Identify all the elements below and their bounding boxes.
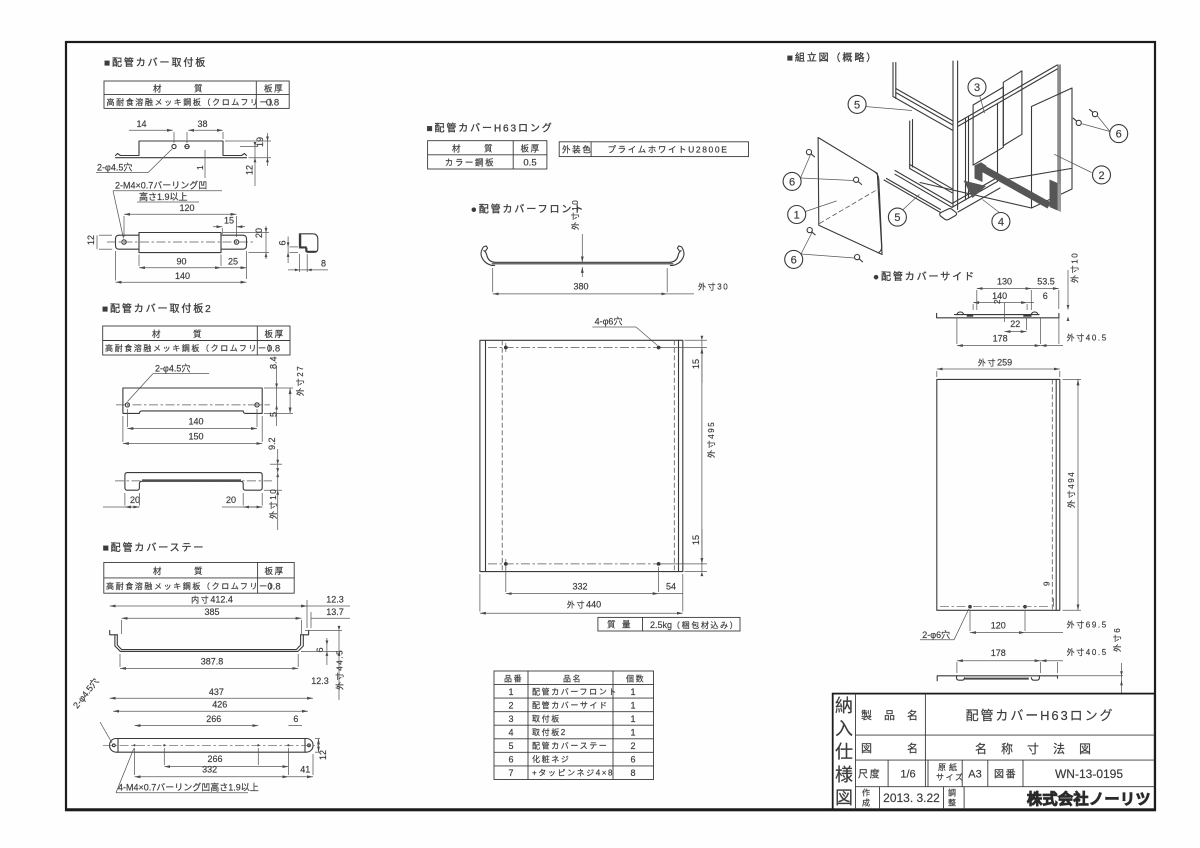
svg-text:1: 1 bbox=[630, 701, 635, 711]
svg-text:150: 150 bbox=[188, 432, 203, 442]
svg-text:プライムホワイトU2800E: プライムホワイトU2800E bbox=[608, 145, 729, 155]
svg-text:A3: A3 bbox=[968, 769, 981, 781]
svg-text:1: 1 bbox=[508, 687, 513, 697]
svg-text:6: 6 bbox=[1116, 129, 1122, 141]
svg-text:図: 図 bbox=[835, 788, 853, 808]
svg-text:1: 1 bbox=[794, 209, 800, 221]
svg-text:外寸69.5: 外寸69.5 bbox=[1067, 620, 1108, 630]
svg-text:1/6: 1/6 bbox=[900, 769, 915, 781]
svg-text:高耐食溶融メッキ鋼板（クロムフリー）: 高耐食溶融メッキ鋼板（クロムフリー） bbox=[105, 343, 277, 353]
svg-text:9.2: 9.2 bbox=[267, 437, 277, 450]
svg-text:高耐食溶融メッキ鋼板（クロムフリー）: 高耐食溶融メッキ鋼板（クロムフリー） bbox=[106, 581, 278, 591]
svg-text:2-M4×0.7バーリング凹: 2-M4×0.7バーリング凹 bbox=[115, 180, 207, 191]
svg-text:板厚: 板厚 bbox=[521, 144, 541, 154]
svg-text:●配管カバーフロント: ●配管カバーフロント bbox=[471, 203, 585, 216]
svg-text:品: 品 bbox=[884, 709, 895, 722]
svg-text:材: 材 bbox=[452, 144, 461, 154]
svg-text:1: 1 bbox=[630, 687, 635, 697]
svg-text:5: 5 bbox=[894, 212, 900, 224]
svg-text:様: 様 bbox=[835, 765, 853, 785]
svg-text:外寸10: 外寸10 bbox=[1070, 252, 1080, 283]
svg-text:図: 図 bbox=[861, 742, 872, 755]
svg-text:8: 8 bbox=[630, 768, 635, 778]
svg-text:板厚: 板厚 bbox=[264, 84, 284, 94]
svg-text:材: 材 bbox=[153, 566, 162, 576]
svg-text:外寸6: 外寸6 bbox=[1112, 627, 1122, 652]
svg-text:8: 8 bbox=[321, 259, 326, 269]
svg-text:質: 質 bbox=[194, 566, 203, 576]
svg-text:2-φ4.5穴: 2-φ4.5穴 bbox=[155, 363, 190, 374]
svg-text:12.3: 12.3 bbox=[311, 676, 329, 686]
svg-text:材: 材 bbox=[153, 84, 162, 94]
svg-text:3: 3 bbox=[508, 714, 513, 724]
svg-text:0.5: 0.5 bbox=[523, 158, 536, 169]
svg-text:140: 140 bbox=[188, 417, 203, 427]
svg-text:成: 成 bbox=[862, 798, 870, 808]
svg-text:130: 130 bbox=[997, 277, 1012, 287]
svg-text:外寸44.5: 外寸44.5 bbox=[335, 649, 345, 690]
svg-text:13.7: 13.7 bbox=[326, 607, 344, 617]
svg-text:2: 2 bbox=[993, 299, 1002, 304]
svg-text:外寸495: 外寸495 bbox=[706, 421, 716, 458]
svg-text:19: 19 bbox=[255, 137, 265, 147]
svg-text:尺度: 尺度 bbox=[858, 768, 881, 781]
svg-text:+タッピンネジ4×8: +タッピンネジ4×8 bbox=[532, 769, 614, 778]
svg-text:質: 質 bbox=[484, 144, 493, 154]
svg-text:1: 1 bbox=[630, 714, 635, 724]
svg-text:1: 1 bbox=[195, 165, 205, 170]
svg-text:385: 385 bbox=[204, 607, 219, 617]
svg-text:質: 質 bbox=[194, 84, 203, 94]
svg-text:332: 332 bbox=[202, 765, 217, 775]
svg-text:内寸412.4: 内寸412.4 bbox=[191, 595, 233, 605]
svg-text:図番: 図番 bbox=[994, 769, 1017, 781]
svg-text:5: 5 bbox=[269, 412, 279, 417]
svg-text:6: 6 bbox=[278, 240, 288, 245]
svg-text:9: 9 bbox=[1043, 581, 1052, 586]
svg-text:4-M4×0.7バーリング凹高さ1.9以上: 4-M4×0.7バーリング凹高さ1.9以上 bbox=[118, 782, 259, 793]
svg-text:取付板: 取付板 bbox=[532, 714, 561, 724]
svg-text:カラー鋼板: カラー鋼板 bbox=[445, 158, 496, 168]
svg-text:調: 調 bbox=[948, 788, 956, 798]
svg-text:2-φ6穴: 2-φ6穴 bbox=[922, 629, 950, 640]
svg-text:120: 120 bbox=[179, 203, 194, 213]
svg-text:納: 納 bbox=[835, 696, 853, 716]
svg-text:6: 6 bbox=[630, 755, 635, 765]
svg-text:5: 5 bbox=[854, 99, 860, 111]
svg-text:15: 15 bbox=[691, 535, 701, 545]
svg-text:整: 整 bbox=[948, 798, 956, 808]
svg-text:株式会社ノーリツ: 株式会社ノーリツ bbox=[1027, 790, 1151, 808]
svg-text:化粧ネジ: 化粧ネジ bbox=[532, 754, 570, 764]
svg-text:426: 426 bbox=[212, 700, 227, 710]
svg-text:6: 6 bbox=[293, 714, 298, 724]
svg-text:外寸40.5: 外寸40.5 bbox=[1067, 333, 1108, 343]
svg-text:個数: 個数 bbox=[626, 674, 645, 684]
svg-text:取付板2: 取付板2 bbox=[532, 727, 567, 737]
svg-text:0.8: 0.8 bbox=[266, 98, 279, 109]
svg-text:質: 質 bbox=[607, 620, 616, 630]
svg-text:332: 332 bbox=[572, 582, 587, 592]
svg-text:7: 7 bbox=[508, 768, 513, 778]
svg-text:■配管カバーH63ロング: ■配管カバーH63ロング bbox=[427, 122, 554, 135]
svg-text:2: 2 bbox=[1098, 170, 1104, 182]
svg-text:板厚: 板厚 bbox=[265, 329, 285, 339]
svg-text:5: 5 bbox=[508, 741, 513, 751]
svg-text:25: 25 bbox=[228, 257, 238, 267]
svg-text:15: 15 bbox=[691, 359, 701, 369]
svg-text:板厚: 板厚 bbox=[265, 566, 285, 576]
svg-text:8.4: 8.4 bbox=[269, 356, 279, 369]
svg-text:配管カバーフロント: 配管カバーフロント bbox=[532, 687, 618, 697]
svg-text:20: 20 bbox=[226, 495, 236, 505]
svg-text:140: 140 bbox=[175, 271, 190, 281]
svg-text:品名: 品名 bbox=[563, 674, 582, 684]
svg-text:高さ1.9以上: 高さ1.9以上 bbox=[139, 191, 188, 202]
svg-text:量: 量 bbox=[622, 620, 631, 630]
svg-text:53.5: 53.5 bbox=[1037, 277, 1055, 287]
svg-text:外寸40.5: 外寸40.5 bbox=[1067, 647, 1108, 657]
svg-text:140: 140 bbox=[992, 291, 1007, 301]
svg-text:380: 380 bbox=[573, 282, 588, 292]
svg-text:4: 4 bbox=[508, 728, 513, 738]
svg-text:外装色: 外装色 bbox=[562, 145, 592, 155]
svg-text:12: 12 bbox=[86, 235, 96, 245]
svg-text:●配管カバーサイド: ●配管カバーサイド bbox=[873, 270, 976, 283]
svg-text:外寸30: 外寸30 bbox=[698, 282, 729, 292]
svg-text:配管カバーステー: 配管カバーステー bbox=[532, 741, 608, 751]
svg-text:仕: 仕 bbox=[835, 742, 853, 762]
svg-text:14: 14 bbox=[136, 119, 146, 129]
svg-text:名: 名 bbox=[907, 741, 918, 755]
svg-text:■配管カバー取付板: ■配管カバー取付板 bbox=[104, 56, 207, 69]
svg-text:外寸10: 外寸10 bbox=[570, 199, 580, 230]
svg-text:外寸27: 外寸27 bbox=[295, 365, 305, 396]
svg-text:20: 20 bbox=[254, 228, 264, 238]
svg-text:■配管カバー取付板2: ■配管カバー取付板2 bbox=[102, 302, 213, 315]
svg-text:15: 15 bbox=[224, 216, 234, 226]
svg-text:120: 120 bbox=[991, 621, 1006, 631]
svg-text:2: 2 bbox=[630, 741, 635, 751]
svg-text:12: 12 bbox=[245, 165, 255, 175]
svg-text:サイズ: サイズ bbox=[936, 772, 965, 782]
svg-text:90: 90 bbox=[176, 257, 186, 267]
svg-text:配管カバーサイド: 配管カバーサイド bbox=[532, 700, 609, 710]
svg-text:3: 3 bbox=[974, 82, 980, 94]
svg-text:266: 266 bbox=[207, 754, 222, 764]
svg-text:2-φ4.5穴: 2-φ4.5穴 bbox=[97, 162, 132, 173]
svg-text:266: 266 bbox=[206, 714, 221, 724]
svg-text:質: 質 bbox=[193, 329, 202, 339]
svg-text:入: 入 bbox=[835, 719, 853, 739]
svg-text:437: 437 bbox=[209, 687, 224, 697]
svg-text:2013. 3.22: 2013. 3.22 bbox=[883, 791, 940, 805]
svg-text:0.8: 0.8 bbox=[267, 344, 280, 355]
svg-text:外寸440: 外寸440 bbox=[567, 600, 601, 610]
svg-text:WN-13-0195: WN-13-0195 bbox=[1055, 767, 1123, 781]
svg-text:6: 6 bbox=[789, 176, 795, 188]
svg-text:54: 54 bbox=[666, 582, 676, 592]
svg-text:■組立図（概略）: ■組立図（概略） bbox=[787, 51, 878, 64]
svg-text:12: 12 bbox=[318, 750, 328, 760]
svg-text:製: 製 bbox=[861, 708, 872, 722]
svg-text:4: 4 bbox=[998, 216, 1004, 228]
svg-text:外寸494: 外寸494 bbox=[1066, 471, 1076, 508]
svg-text:387.8: 387.8 bbox=[201, 657, 224, 667]
svg-text:22: 22 bbox=[1010, 319, 1020, 329]
svg-text:1: 1 bbox=[630, 728, 635, 738]
svg-text:材: 材 bbox=[152, 329, 161, 339]
svg-text:名称寸法図: 名称寸法図 bbox=[975, 741, 1105, 756]
svg-text:配管カバーH63ロング: 配管カバーH63ロング bbox=[966, 708, 1115, 723]
svg-text:6: 6 bbox=[791, 254, 797, 266]
svg-text:2.5kg（梱包材込み）: 2.5kg（梱包材込み） bbox=[650, 620, 739, 630]
svg-text:2-φ4.5穴: 2-φ4.5穴 bbox=[70, 676, 100, 711]
svg-text:品番: 品番 bbox=[504, 674, 523, 684]
svg-text:名: 名 bbox=[907, 708, 918, 722]
svg-text:高耐食溶融メッキ鋼板（クロムフリー）: 高耐食溶融メッキ鋼板（クロムフリー） bbox=[107, 97, 279, 107]
svg-text:2: 2 bbox=[508, 701, 513, 711]
svg-text:41: 41 bbox=[300, 765, 310, 775]
svg-text:6: 6 bbox=[508, 755, 513, 765]
svg-text:178: 178 bbox=[991, 648, 1006, 658]
svg-text:6: 6 bbox=[1043, 291, 1048, 301]
svg-text:38: 38 bbox=[197, 119, 207, 129]
svg-text:外寸259: 外寸259 bbox=[978, 358, 1012, 368]
svg-text:20: 20 bbox=[130, 495, 140, 505]
svg-text:178: 178 bbox=[993, 334, 1008, 344]
svg-text:0.8: 0.8 bbox=[267, 582, 280, 593]
svg-text:作: 作 bbox=[862, 788, 870, 798]
svg-text:4-φ6穴: 4-φ6穴 bbox=[595, 316, 623, 327]
svg-text:12.3: 12.3 bbox=[326, 595, 344, 605]
svg-text:■配管カバーステー: ■配管カバーステー bbox=[103, 541, 206, 554]
svg-text:外寸10: 外寸10 bbox=[268, 488, 278, 519]
